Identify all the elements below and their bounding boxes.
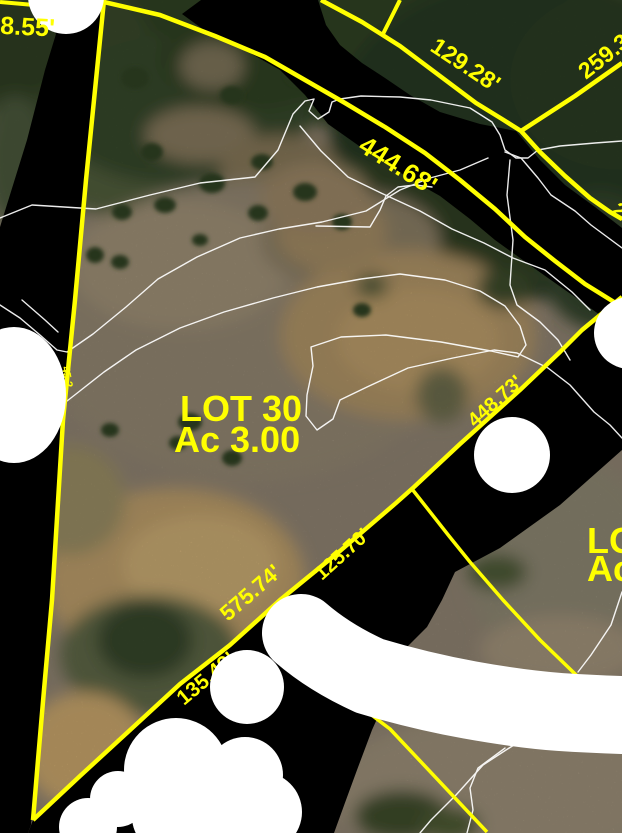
svg-text:Ac 3.05: Ac 3.05 xyxy=(587,548,622,589)
svg-text:Ac 3.00: Ac 3.00 xyxy=(174,419,300,460)
svg-text:48.55': 48.55' xyxy=(0,11,56,43)
